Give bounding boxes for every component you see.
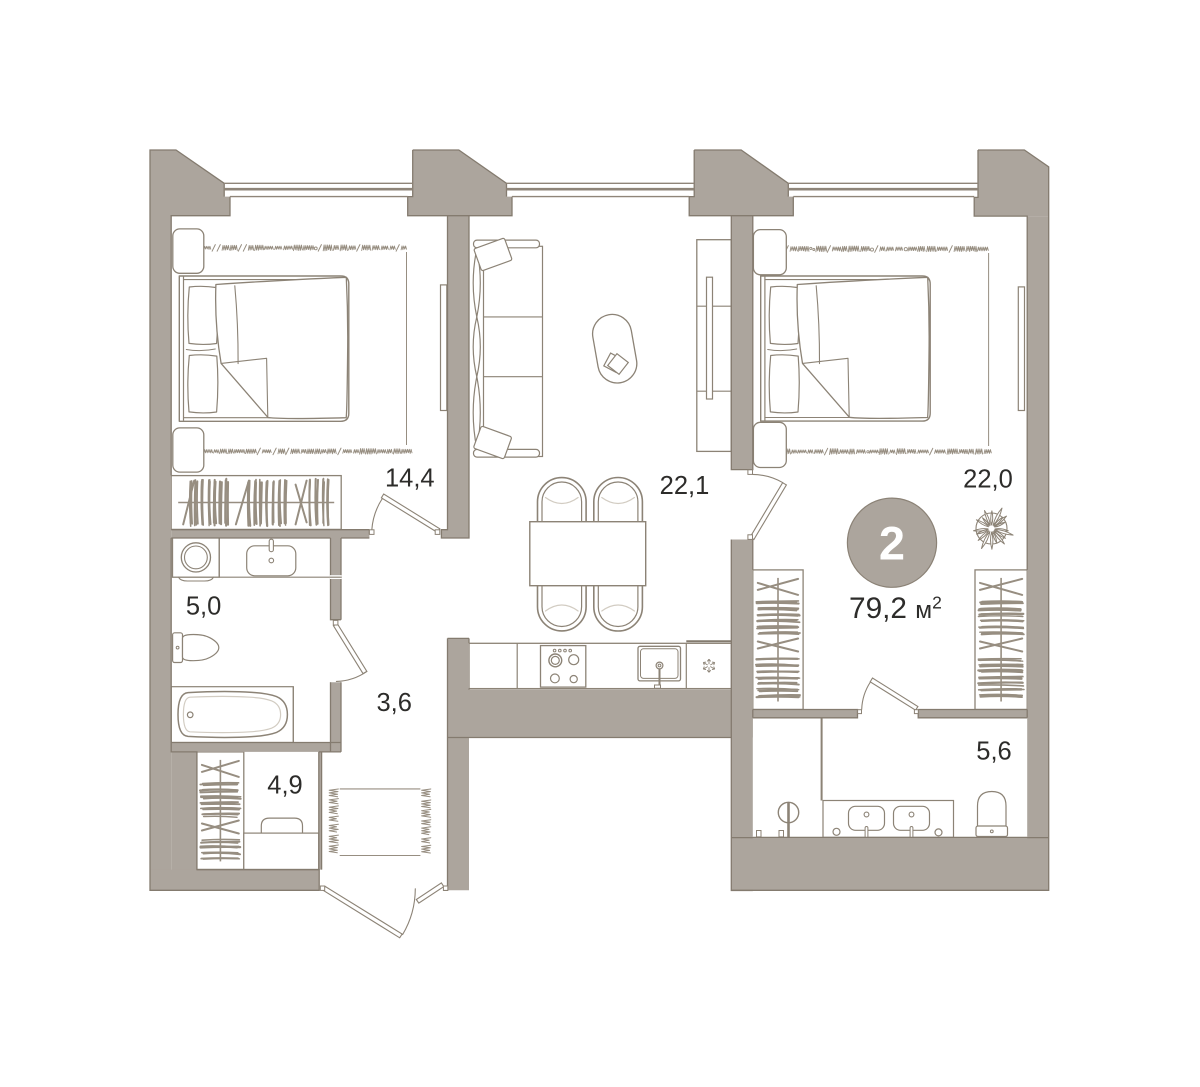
svg-text:5,6: 5,6 [976,738,1011,766]
svg-text:2: 2 [879,517,905,570]
svg-text:22,1: 22,1 [660,472,710,500]
svg-text:5,0: 5,0 [186,593,221,621]
svg-text:4,9: 4,9 [267,771,302,799]
svg-text:14,4: 14,4 [385,465,435,493]
svg-text:79,2 м2: 79,2 м2 [849,592,942,625]
svg-text:3,6: 3,6 [376,689,411,717]
svg-text:22,0: 22,0 [963,465,1013,493]
